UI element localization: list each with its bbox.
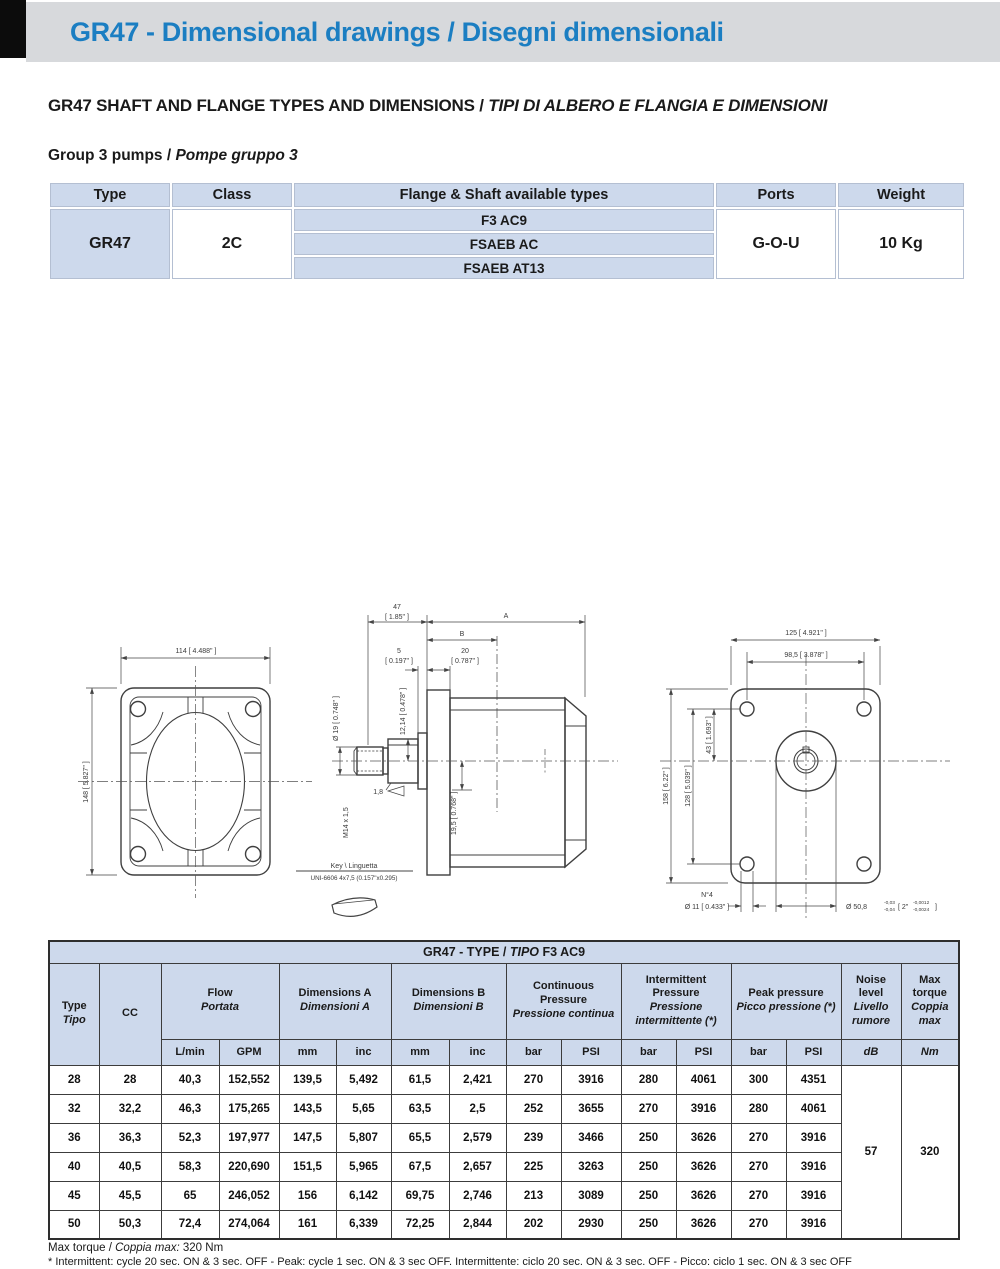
page-title: GR47 - Dimensional drawings / Disegni di… (26, 17, 724, 48)
cell: 2,5 (449, 1094, 506, 1123)
col-header-noise-it: Livello rumore (844, 1001, 899, 1029)
section-heading-en: GR47 SHAFT AND FLANGE TYPES AND DIMENSIO… (48, 96, 488, 115)
cell: 151,5 (279, 1152, 336, 1181)
group-heading: Group 3 pumps / Pompe gruppo 3 (48, 147, 298, 165)
cell: 4351 (786, 1065, 841, 1094)
max-torque-note-en: Max torque / (48, 1242, 115, 1254)
table-title: GR47 - TYPE / TIPO F3 AC9 (49, 941, 959, 963)
cell: 143,5 (279, 1094, 336, 1123)
cell: 270 (731, 1152, 786, 1181)
cell: 175,265 (219, 1094, 279, 1123)
cell: 5,965 (336, 1152, 391, 1181)
cell: 213 (506, 1181, 561, 1210)
unit-psi-peak: PSI (786, 1039, 841, 1065)
noise-value: 57 (841, 1065, 901, 1239)
rear-holes-diameter: Ø 11 [ 0.433" ] (685, 904, 729, 911)
unit-gpm: GPM (219, 1039, 279, 1065)
col-header-peak-en: Peak pressure (734, 987, 839, 1001)
rear-pilot-inch: [ 2" (898, 904, 909, 911)
cell: 5,492 (336, 1065, 391, 1094)
side-thread-spec: M14 x 1,5 (343, 807, 350, 838)
col-header-continuous-pressure: Continuous Pressure Pressione continua (506, 963, 621, 1039)
cell: 270 (731, 1210, 786, 1239)
dimensional-drawings: 114 [ 4.488" ] 148 [ 5.827" ] (0, 575, 1000, 940)
cell: 5,807 (336, 1123, 391, 1152)
cell: 250 (621, 1181, 676, 1210)
col-header-torque-it: Coppia max (904, 1001, 957, 1029)
col-header-torque-en: Max torque (904, 974, 957, 1002)
col-header-dim-a: Dimensions A Dimensioni A (279, 963, 391, 1039)
spec-col-class: Class (172, 183, 292, 207)
max-torque-note: Max torque / Coppia max: 320 Nm (48, 1242, 223, 1254)
rear-pilot-tol-bottom: -0,04 (884, 907, 895, 913)
rear-pilot-diameter: Ø 50,8 (846, 904, 867, 911)
rear-pilot-inch-tol-top: -0,0012 (913, 900, 930, 906)
cell: 274,064 (219, 1210, 279, 1239)
table-row: 5050,3 72,4274,064 1616,339 72,252,844 2… (49, 1210, 959, 1239)
cell: 40,5 (99, 1152, 161, 1181)
cell: 3916 (786, 1210, 841, 1239)
cell: 3655 (561, 1094, 621, 1123)
spec-type-value: GR47 (50, 209, 170, 279)
rear-height-dim: 158 [ 6.22" ] (663, 767, 670, 805)
unit-db: dB (841, 1039, 901, 1065)
key-spec: UNI-6606 4x7,5 (0.157"x0.295) (311, 875, 398, 882)
cell: 40 (49, 1152, 99, 1181)
cell: 202 (506, 1210, 561, 1239)
cell: 52,3 (161, 1123, 219, 1152)
page-title-band: GR47 - Dimensional drawings / Disegni di… (26, 2, 1000, 62)
cell: 3626 (676, 1152, 731, 1181)
col-header-torque: Max torque Coppia max (901, 963, 959, 1039)
col-header-cont-it: Pressione continua (509, 1008, 619, 1022)
cell: 6,142 (336, 1181, 391, 1210)
col-header-noise: Noise level Livello rumore (841, 963, 901, 1039)
cell: 45,5 (99, 1181, 161, 1210)
scan-edge-artifact (0, 0, 26, 58)
col-header-cc: CC (99, 963, 161, 1065)
side-shaft-diameter-dim: Ø 19 [ 0.748" ] (333, 696, 340, 741)
col-header-dim-b: Dimensions B Dimensioni B (391, 963, 506, 1039)
table-row: 3636,3 52,3197,977 147,55,807 65,52,579 … (49, 1123, 959, 1152)
side-view-drawing: 47 [ 1.85" ] A B 5 [ 0.197" ] 20 [ 0.787… (296, 604, 618, 916)
side-dim-a: A (504, 613, 509, 620)
group-heading-en: Group 3 pumps / (48, 147, 175, 164)
col-header-noise-en: Noise level (844, 974, 899, 1002)
col-header-dim-a-en: Dimensions A (282, 987, 389, 1001)
table-row: 3232,2 46,3175,265 143,55,65 63,52,5 252… (49, 1094, 959, 1123)
cell: 280 (731, 1094, 786, 1123)
cell: 2,657 (449, 1152, 506, 1181)
side-dim-b: B (460, 631, 465, 638)
cell: 50,3 (99, 1210, 161, 1239)
cell: 270 (731, 1181, 786, 1210)
unit-psi-cont: PSI (561, 1039, 621, 1065)
rear-bolt-spacing-v-dim: 128 [ 5.039" ] (685, 765, 692, 806)
cell: 270 (621, 1094, 676, 1123)
cell: 250 (621, 1210, 676, 1239)
unit-bar-peak: bar (731, 1039, 786, 1065)
cell: 3916 (676, 1094, 731, 1123)
col-header-type-it: Tipo (52, 1014, 97, 1028)
spec-flange-value: FSAEB AC (294, 233, 714, 255)
intermittent-note: * Intermittent: cycle 20 sec. ON & 3 sec… (48, 1256, 852, 1268)
cell: 50 (49, 1210, 99, 1239)
col-header-peak-pressure: Peak pressure Picco pressione (*) (731, 963, 841, 1039)
side-dim-20-inch: [ 0.787" ] (451, 658, 479, 665)
unit-mm-b: mm (391, 1039, 449, 1065)
cell: 63,5 (391, 1094, 449, 1123)
rear-holes-count: N°4 (701, 891, 713, 899)
cell: 45 (49, 1181, 99, 1210)
col-header-type-en: Type (52, 1000, 97, 1014)
table-row: 4040,5 58,3220,690 151,55,965 67,52,657 … (49, 1152, 959, 1181)
unit-inc-a: inc (336, 1039, 391, 1065)
cell: 4061 (786, 1094, 841, 1123)
spec-weight-value: 10 Kg (838, 209, 964, 279)
cell: 3916 (786, 1123, 841, 1152)
col-header-dim-b-it: Dimensioni B (394, 1001, 504, 1015)
spec-class-value: 2C (172, 209, 292, 279)
col-header-flow-en: Flow (164, 987, 277, 1001)
table-title-row: GR47 - TYPE / TIPO F3 AC9 (49, 941, 959, 963)
side-dim-20: 20 (461, 648, 469, 655)
drawings-svg: 114 [ 4.488" ] 148 [ 5.827" ] (0, 575, 1000, 940)
cell: 65,5 (391, 1123, 449, 1152)
cell: 69,75 (391, 1181, 449, 1210)
cell: 3626 (676, 1123, 731, 1152)
cell: 3263 (561, 1152, 621, 1181)
cell: 72,25 (391, 1210, 449, 1239)
cell: 67,5 (391, 1152, 449, 1181)
max-torque-note-it: Coppia max: (115, 1242, 180, 1254)
cell: 3626 (676, 1181, 731, 1210)
unit-bar-int: bar (621, 1039, 676, 1065)
spec-table: Type Class Flange & Shaft available type… (48, 181, 966, 281)
cell: 2,746 (449, 1181, 506, 1210)
section-heading-it: TIPI DI ALBERO E FLANGIA E DIMENSIONI (488, 96, 827, 115)
spec-ports-value: G-O-U (716, 209, 836, 279)
cell: 36,3 (99, 1123, 161, 1152)
cell: 250 (621, 1123, 676, 1152)
col-header-peak-it: Picco pressione (*) (734, 1001, 839, 1015)
unit-nm: Nm (901, 1039, 959, 1065)
col-header-dim-b-en: Dimensions B (394, 987, 504, 1001)
group-heading-it: Pompe gruppo 3 (175, 147, 297, 164)
cell: 152,552 (219, 1065, 279, 1094)
cell: 147,5 (279, 1123, 336, 1152)
spec-col-type: Type (50, 183, 170, 207)
rear-width-dim: 125 [ 4.921" ] (785, 630, 826, 637)
side-dim-47-inch: [ 1.85" ] (385, 614, 409, 621)
cell: 239 (506, 1123, 561, 1152)
cell: 65 (161, 1181, 219, 1210)
cell: 3466 (561, 1123, 621, 1152)
col-header-dim-a-it: Dimensioni A (282, 1001, 389, 1015)
cell: 252 (506, 1094, 561, 1123)
side-dim-47: 47 (393, 604, 401, 611)
table-row: 2828 40,3152,552 139,55,492 61,52,421 27… (49, 1065, 959, 1094)
cell: 4061 (676, 1065, 731, 1094)
cell: 3916 (561, 1065, 621, 1094)
catalog-page: GR47 - Dimensional drawings / Disegni di… (0, 0, 1000, 1269)
cell: 300 (731, 1065, 786, 1094)
cell: 2,844 (449, 1210, 506, 1239)
col-header-flow: Flow Portata (161, 963, 279, 1039)
cell: 161 (279, 1210, 336, 1239)
unit-inc-b: inc (449, 1039, 506, 1065)
cell: 139,5 (279, 1065, 336, 1094)
torque-value: 320 (901, 1065, 959, 1239)
cell: 28 (99, 1065, 161, 1094)
col-header-type: Type Tipo (49, 963, 99, 1065)
unit-bar-cont: bar (506, 1039, 561, 1065)
cell: 246,052 (219, 1181, 279, 1210)
unit-mm-a: mm (279, 1039, 336, 1065)
side-key-flat-dim: 12,14 [ 0.478" ] (400, 688, 407, 735)
cell: 156 (279, 1181, 336, 1210)
section-heading: GR47 SHAFT AND FLANGE TYPES AND DIMENSIO… (48, 96, 827, 116)
cell: 32 (49, 1094, 99, 1123)
spec-col-ports: Ports (716, 183, 836, 207)
cell: 46,3 (161, 1094, 219, 1123)
cell: 2,579 (449, 1123, 506, 1152)
table-title-it: TIPO (510, 945, 539, 959)
col-header-int-en: Intermittent Pressure (624, 974, 729, 1002)
side-dim-5: 5 (397, 648, 401, 655)
col-header-cont-en: Continuous Pressure (509, 980, 619, 1008)
unit-psi-int: PSI (676, 1039, 731, 1065)
spec-col-weight: Weight (838, 183, 964, 207)
cell: 36 (49, 1123, 99, 1152)
side-port-offset-dim: 19,5 [ 0.768" ] (451, 792, 458, 835)
cell: 3916 (786, 1152, 841, 1181)
cell: 250 (621, 1152, 676, 1181)
cell: 58,3 (161, 1152, 219, 1181)
key-label: Key \ Linguetta (331, 863, 378, 870)
cell: 40,3 (161, 1065, 219, 1094)
unit-lmin: L/min (161, 1039, 219, 1065)
units-row: L/min GPM mm inc mm inc bar PSI bar PSI … (49, 1039, 959, 1065)
cell: 2930 (561, 1210, 621, 1239)
front-view-drawing: 114 [ 4.488" ] 148 [ 5.827" ] (78, 647, 312, 898)
cell: 3089 (561, 1181, 621, 1210)
spec-col-flange: Flange & Shaft available types (294, 183, 714, 207)
spec-flange-value: FSAEB AT13 (294, 257, 714, 279)
side-dim-5-inch: [ 0.197" ] (385, 658, 413, 665)
cell: 32,2 (99, 1094, 161, 1123)
cell: 72,4 (161, 1210, 219, 1239)
spec-flange-value: F3 AC9 (294, 209, 714, 231)
max-torque-note-value: 320 Nm (180, 1242, 223, 1254)
rear-pilot-tol-top: -0,03 (884, 900, 895, 906)
col-header-flow-it: Portata (164, 1001, 277, 1015)
rear-view-drawing: 125 [ 4.921" ] 98,5 [ 3.878" ] 158 [ 6.2… (660, 630, 950, 920)
cell: 28 (49, 1065, 99, 1094)
col-header-int-it: Pressione intermittente (*) (624, 1001, 729, 1029)
performance-table: GR47 - TYPE / TIPO F3 AC9 Type Tipo CC F… (48, 940, 960, 1240)
table-title-pre: GR47 - TYPE / (423, 945, 510, 959)
cell: 225 (506, 1152, 561, 1181)
rear-pilot-inch-tol-bottom: -0,0024 (913, 907, 930, 913)
cell: 6,339 (336, 1210, 391, 1239)
rear-pilot-bracket-close: ] (935, 904, 937, 911)
rear-bolt-spacing-h-dim: 98,5 [ 3.878" ] (784, 652, 827, 659)
cell: 197,977 (219, 1123, 279, 1152)
front-width-dim: 114 [ 4.488" ] (176, 648, 217, 655)
col-header-intermittent-pressure: Intermittent Pressure Pressione intermit… (621, 963, 731, 1039)
cell: 2,421 (449, 1065, 506, 1094)
table-title-post: F3 AC9 (539, 945, 585, 959)
side-chamfer-dim: 1,8 (373, 789, 383, 796)
rear-bolt-to-center-dim: 43 [ 1.693" ] (706, 716, 713, 754)
cell: 3916 (786, 1181, 841, 1210)
cell: 3626 (676, 1210, 731, 1239)
table-row: 4545,5 65246,052 1566,142 69,752,746 213… (49, 1181, 959, 1210)
cell: 5,65 (336, 1094, 391, 1123)
cell: 220,690 (219, 1152, 279, 1181)
cell: 270 (506, 1065, 561, 1094)
cell: 270 (731, 1123, 786, 1152)
cell: 280 (621, 1065, 676, 1094)
cell: 61,5 (391, 1065, 449, 1094)
front-height-dim: 148 [ 5.827" ] (83, 761, 90, 802)
